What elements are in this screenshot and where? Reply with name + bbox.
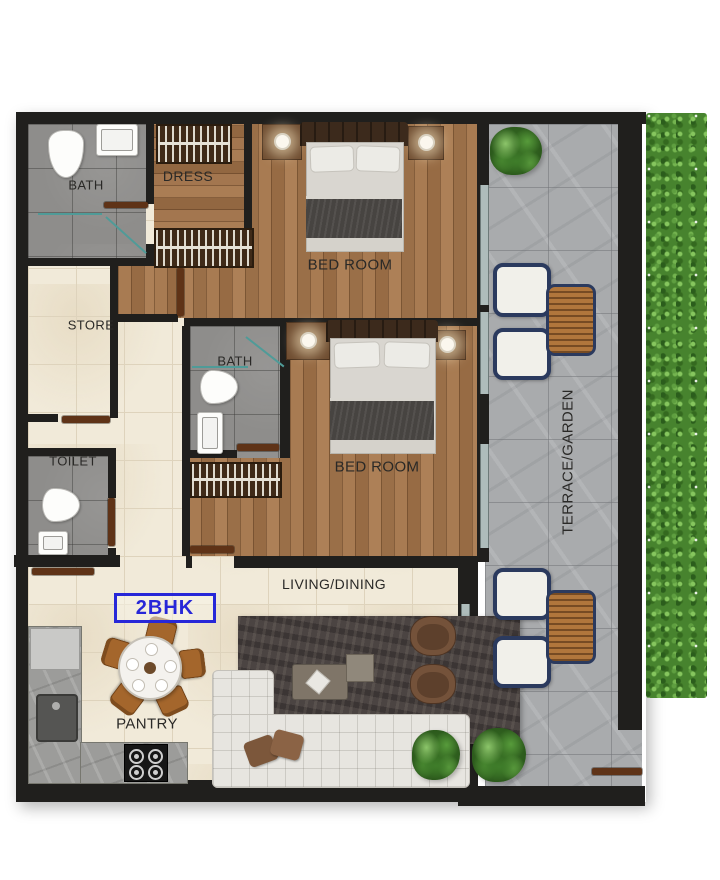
terrace-chair	[493, 328, 551, 380]
faucet-icon	[52, 702, 60, 710]
lamp-icon	[439, 336, 456, 353]
pillow	[356, 145, 401, 173]
door-bath1	[104, 202, 148, 208]
glass-slider-bedroom2-b	[480, 444, 489, 548]
door-bath2	[237, 444, 279, 451]
room-label-bath1: BATH	[68, 178, 103, 193]
wardrobe-bedroom2	[190, 462, 282, 498]
plate-icon	[164, 660, 177, 673]
room-label-toilet: TOILET	[49, 454, 97, 469]
door-store	[62, 416, 110, 423]
plate-icon	[132, 679, 145, 692]
room-label-living-dining: LIVING/DINING	[282, 576, 386, 592]
book-icon	[305, 669, 330, 694]
burner-icon	[129, 765, 144, 780]
door-bedroom2	[190, 546, 234, 553]
lamp-icon	[418, 134, 435, 151]
sink-icon	[197, 412, 223, 454]
wall-corridor-stub	[118, 314, 178, 322]
wall-living-top-b	[234, 556, 478, 568]
terrace-chair	[493, 568, 551, 620]
wardrobe-dress-bottom	[154, 228, 254, 268]
wall-toilet-right-a	[108, 448, 116, 498]
wall-living-top-a	[186, 556, 192, 568]
door-toilet	[108, 498, 115, 546]
armchair	[410, 616, 456, 656]
sink-icon	[96, 124, 138, 156]
shower-partition-bath1	[38, 213, 102, 215]
wall-bath1-bottom	[28, 258, 172, 266]
centerpiece-icon	[144, 662, 156, 674]
wall-dress-right	[244, 112, 252, 234]
lamp-icon	[300, 332, 317, 349]
wall-store-right	[110, 258, 118, 418]
terrace-chair	[493, 263, 551, 317]
unit-type-badge: 2BHK	[114, 593, 216, 623]
room-label-bedroom1: BED ROOM	[308, 257, 393, 274]
stove	[124, 744, 168, 782]
room-label-pantry: PANTRY	[116, 716, 178, 733]
bed-blanket	[306, 196, 402, 241]
dining-table	[118, 636, 182, 700]
armchair	[410, 664, 456, 704]
room-label-store: STORE	[68, 318, 115, 333]
bed-foot-fold	[330, 440, 436, 454]
room-label-terrace: TERRACE/GARDEN	[560, 389, 577, 535]
glass-slider-bedroom2-a	[480, 312, 489, 394]
terrace-chair	[493, 636, 551, 688]
door-terrace	[592, 768, 642, 775]
plate-icon	[145, 643, 158, 656]
floor-plan: BATH DRESS BED ROOM STORE BATH TOILET BE…	[0, 0, 720, 880]
wardrobe-dress-top	[156, 124, 232, 164]
plate-icon	[155, 679, 168, 692]
wall-bath1-right-a	[146, 112, 154, 204]
bed-foot-fold	[306, 238, 404, 252]
coffee-table	[292, 664, 348, 700]
lamp-icon	[274, 133, 291, 150]
room-label-bath2: BATH	[217, 354, 252, 369]
pillow	[384, 341, 431, 369]
side-table	[346, 654, 374, 682]
door-corridor	[177, 268, 184, 316]
corridor-floor	[118, 266, 154, 318]
burner-icon	[148, 749, 163, 764]
wall-bottom-terrace	[458, 786, 645, 806]
glass-slider-bedroom1	[480, 185, 489, 305]
wall-terrace-right	[618, 112, 642, 730]
pillow	[334, 341, 381, 369]
wall-left	[16, 112, 28, 802]
terrace-table	[546, 590, 596, 664]
room-label-dress: DRESS	[163, 168, 213, 184]
fridge	[30, 628, 80, 670]
wall-entrance	[14, 555, 120, 567]
garden-hedge	[646, 113, 707, 698]
plate-icon	[126, 658, 139, 671]
burner-icon	[148, 765, 163, 780]
wall-corridor-right	[182, 326, 190, 556]
bed-blanket	[330, 398, 434, 443]
sink-icon	[38, 531, 68, 555]
room-label-bedroom2: BED ROOM	[335, 459, 420, 476]
burner-icon	[129, 749, 144, 764]
door-entrance	[32, 568, 94, 575]
pillow	[310, 145, 355, 173]
wall-store-bottom-stub	[28, 414, 58, 422]
terrace-table	[546, 284, 596, 356]
dining-chair	[178, 648, 206, 680]
